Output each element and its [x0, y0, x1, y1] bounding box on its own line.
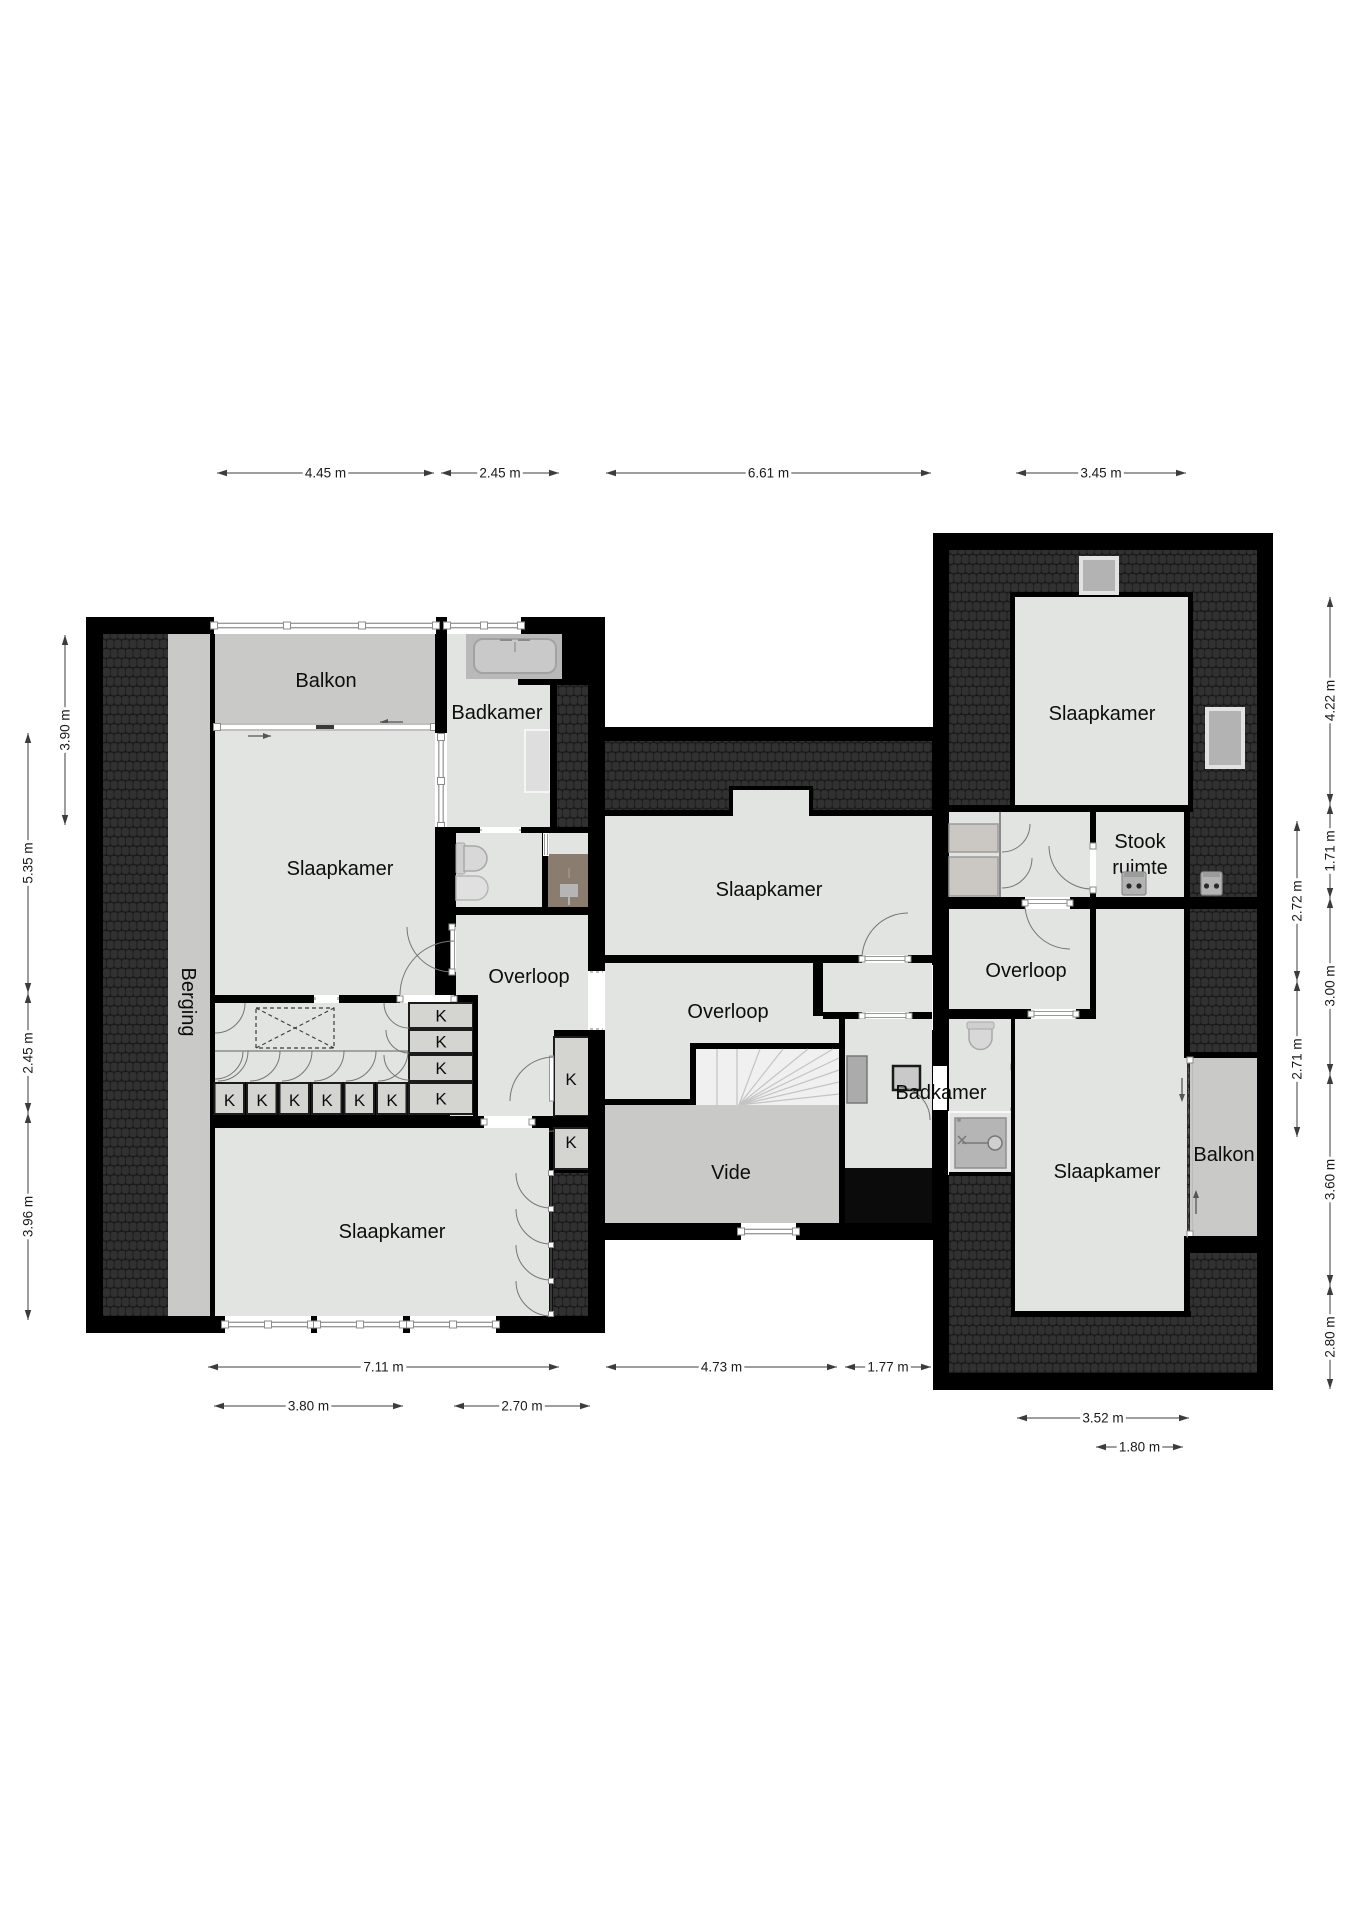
svg-text:Overloop: Overloop — [985, 960, 1066, 982]
svg-text:K: K — [321, 1091, 333, 1110]
svg-text:Slaapkamer: Slaapkamer — [716, 879, 823, 901]
svg-text:3.80 m: 3.80 m — [288, 1399, 329, 1414]
svg-text:K: K — [289, 1091, 301, 1110]
svg-text:2.45 m: 2.45 m — [21, 1032, 36, 1073]
svg-text:4.22 m: 4.22 m — [1323, 680, 1338, 721]
svg-text:K: K — [386, 1091, 398, 1110]
svg-text:1.77 m: 1.77 m — [867, 1360, 908, 1375]
svg-text:K: K — [435, 1007, 447, 1026]
svg-text:2.80 m: 2.80 m — [1323, 1316, 1338, 1357]
svg-text:3.60 m: 3.60 m — [1323, 1159, 1338, 1200]
svg-text:2.45 m: 2.45 m — [479, 466, 520, 481]
svg-text:6.61 m: 6.61 m — [748, 466, 789, 481]
svg-text:K: K — [565, 1133, 577, 1152]
svg-text:K: K — [256, 1091, 268, 1110]
svg-text:Vide: Vide — [711, 1162, 751, 1184]
svg-text:Balkon: Balkon — [295, 670, 356, 692]
svg-text:Stook: Stook — [1114, 831, 1166, 853]
svg-text:4.45 m: 4.45 m — [305, 466, 346, 481]
svg-text:Slaapkamer: Slaapkamer — [287, 858, 394, 880]
svg-text:2.70 m: 2.70 m — [501, 1399, 542, 1414]
svg-text:7.11 m: 7.11 m — [363, 1360, 403, 1375]
svg-text:5.35 m: 5.35 m — [21, 842, 36, 883]
svg-text:3.52 m: 3.52 m — [1082, 1411, 1123, 1426]
svg-text:3.00 m: 3.00 m — [1323, 965, 1338, 1006]
svg-text:K: K — [435, 1059, 447, 1078]
svg-text:Badkamer: Badkamer — [895, 1082, 986, 1104]
svg-text:1.71 m: 1.71 m — [1323, 830, 1338, 871]
svg-text:Overloop: Overloop — [488, 966, 569, 988]
svg-text:K: K — [435, 1033, 447, 1052]
svg-text:2.72 m: 2.72 m — [1290, 880, 1305, 921]
svg-text:Slaapkamer: Slaapkamer — [1054, 1161, 1161, 1183]
svg-text:2.71 m: 2.71 m — [1290, 1038, 1305, 1079]
svg-text:3.45 m: 3.45 m — [1080, 466, 1121, 481]
svg-text:K: K — [354, 1091, 366, 1110]
svg-text:1.80 m: 1.80 m — [1119, 1440, 1160, 1455]
svg-text:K: K — [224, 1091, 236, 1110]
svg-text:Slaapkamer: Slaapkamer — [339, 1221, 446, 1243]
svg-text:Slaapkamer: Slaapkamer — [1049, 703, 1156, 725]
svg-text:Overloop: Overloop — [687, 1001, 768, 1023]
svg-text:3.90 m: 3.90 m — [58, 709, 73, 750]
svg-text:K: K — [435, 1090, 447, 1109]
svg-text:Badkamer: Badkamer — [451, 702, 542, 724]
svg-text:3.96 m: 3.96 m — [21, 1196, 36, 1237]
svg-text:4.73 m: 4.73 m — [701, 1360, 742, 1375]
svg-text:Balkon: Balkon — [1193, 1144, 1254, 1166]
svg-text:Berging: Berging — [177, 968, 199, 1037]
svg-text:K: K — [565, 1070, 577, 1089]
